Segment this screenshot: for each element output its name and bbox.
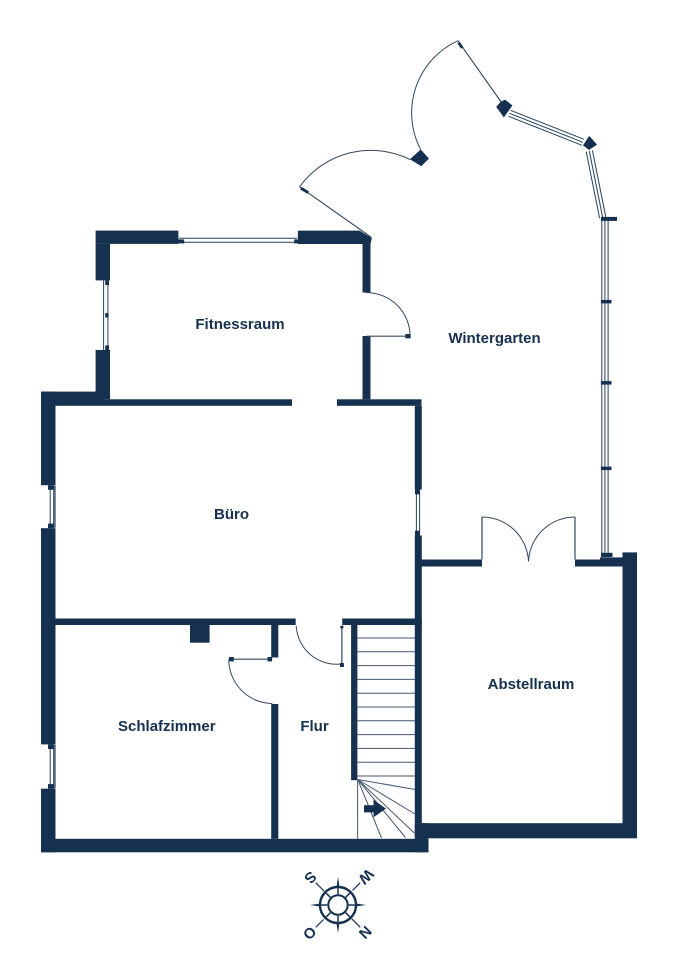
svg-text:Flur: Flur [300,718,328,735]
svg-text:Wintergarten: Wintergarten [448,330,540,347]
svg-text:Schlafzimmer: Schlafzimmer [118,718,216,735]
svg-text:Abstellraum: Abstellraum [488,676,575,693]
svg-text:Fitnessraum: Fitnessraum [195,316,284,333]
svg-text:Büro: Büro [214,506,249,523]
